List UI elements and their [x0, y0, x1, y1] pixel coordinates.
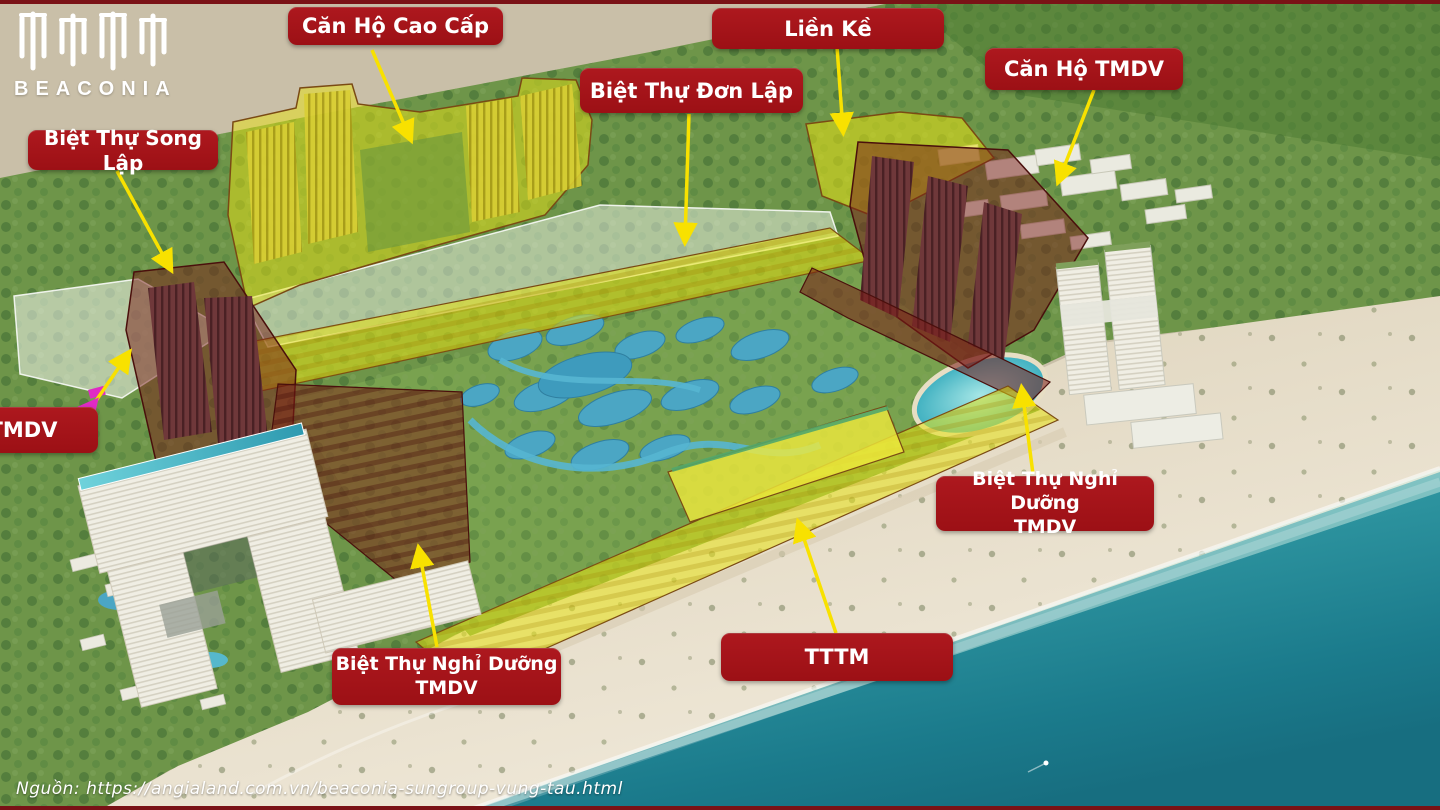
- slide-bottom-border: [0, 806, 1440, 810]
- zone-label-biet-thu-nghi-duong-tmdv-beach: Biệt Thự Nghỉ Dưỡng TMDV: [332, 648, 561, 705]
- beaconia-logo: BEACONIA: [14, 10, 194, 101]
- beaconia-logo-icon: [14, 10, 182, 72]
- zone-label-biet-thu-nghi-duong-tmdv-right: Biệt Thự Nghỉ Dưỡng TMDV: [936, 476, 1154, 531]
- zone-label-tttm: TTTM: [721, 633, 953, 681]
- zone-label-tmdv: TMDV: [0, 407, 98, 453]
- masterplan-aerial-render: [0, 0, 1440, 810]
- zone-label-biet-thu-song-lap: Biệt Thự Song Lập: [28, 130, 218, 170]
- slide-root: BEACONIA Căn Hộ Cao Cấp Liền Kề Biệt Thự…: [0, 0, 1440, 810]
- slide-top-border: [0, 0, 1440, 4]
- zone-label-can-ho-tmdv: Căn Hộ TMDV: [985, 48, 1183, 90]
- beaconia-logo-text: BEACONIA: [14, 78, 194, 101]
- zone-label-can-ho-cao-cap: Căn Hộ Cao Cấp: [288, 7, 503, 45]
- zone-label-lien-ke: Liền Kề: [712, 8, 944, 49]
- source-note: Nguồn: https://angialand.com.vn/beaconia…: [16, 779, 623, 799]
- zone-label-biet-thu-don-lap: Biệt Thự Đơn Lập: [580, 68, 803, 113]
